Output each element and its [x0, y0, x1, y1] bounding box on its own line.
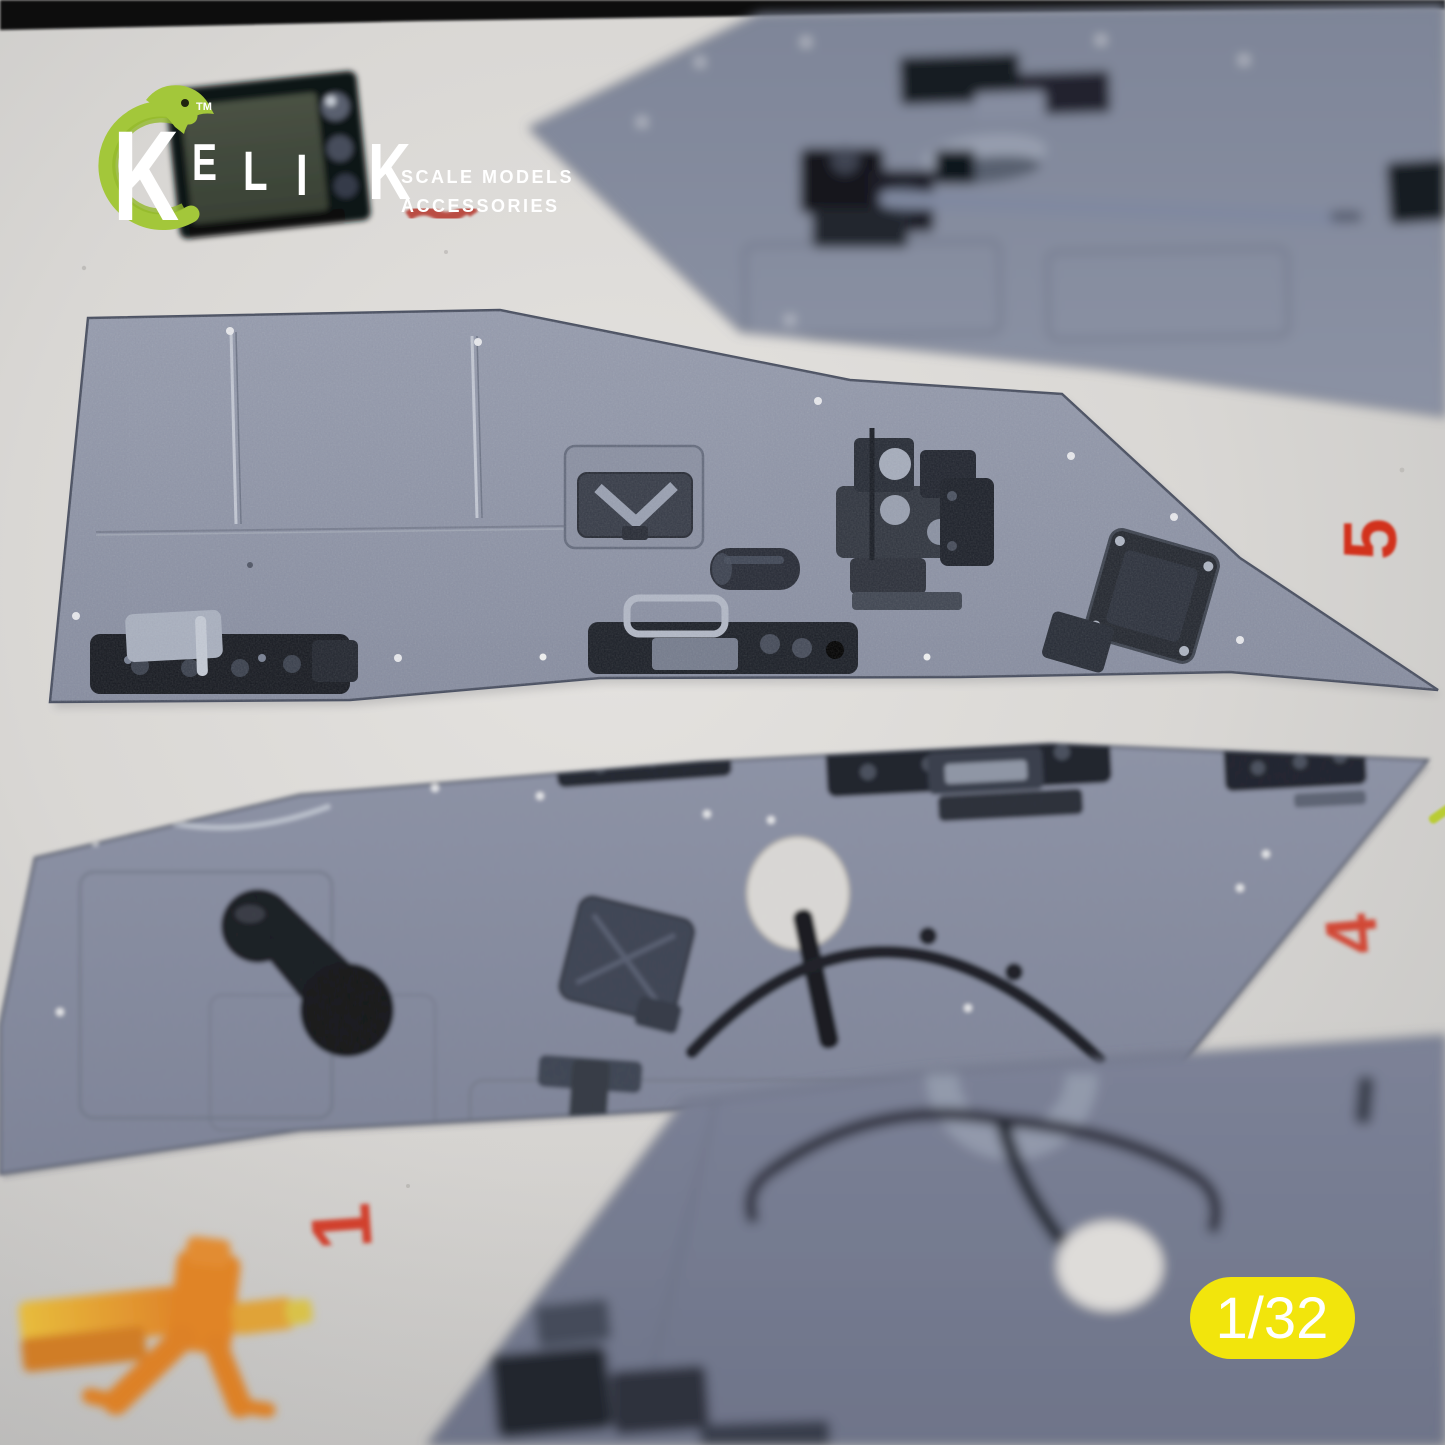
scale-badge: 1/32: [1190, 1277, 1355, 1359]
dust-speck: [444, 250, 448, 254]
gun-barrel-tip: [1330, 210, 1362, 223]
gun-block: [812, 208, 908, 248]
dust-speck: [82, 266, 86, 270]
dust-speck: [1400, 468, 1405, 473]
detail-block: [1386, 158, 1445, 225]
rivet: [1097, 36, 1105, 44]
orange-arm-tip: [285, 1299, 314, 1326]
product-photo: 5: [0, 0, 1445, 1445]
detail-block: [534, 1298, 612, 1348]
detail-block: [610, 1365, 710, 1436]
photo-canvas: 5: [0, 0, 1445, 1445]
gun-block: [935, 150, 975, 184]
rivet: [802, 38, 810, 46]
logo-initial: K: [113, 104, 180, 247]
logo-trademark: TM: [196, 101, 212, 113]
logo-letter-i: I: [296, 142, 308, 207]
orange-left-foot: [90, 1396, 116, 1402]
rivet: [696, 58, 704, 66]
badge-label: 1/32: [1216, 1286, 1329, 1351]
orange-right-foot: [240, 1406, 268, 1410]
logo-letter-e: E: [192, 133, 217, 192]
logo-letter-l: L: [243, 141, 268, 203]
logo-tagline-1: SCALE MODELS: [401, 167, 574, 187]
rivet: [638, 118, 646, 126]
orange-head: [184, 1235, 231, 1268]
detail-block: [491, 1345, 614, 1439]
detail-bridge: [975, 91, 1046, 119]
dragon-eye: [181, 99, 189, 107]
rivet: [1240, 56, 1248, 64]
rivet: [786, 316, 794, 324]
gun-knob: [831, 146, 859, 174]
logo-tagline-2: ACCESSORIES: [401, 196, 560, 216]
rivet: [540, 654, 547, 661]
part-marker-4: 4: [1311, 911, 1394, 958]
panel-hole: [1057, 1221, 1163, 1311]
dust-speck: [406, 1184, 410, 1188]
part-marker-1: 1: [293, 1200, 390, 1253]
part-marker-5: 5: [1328, 518, 1412, 560]
rivet: [924, 654, 931, 661]
